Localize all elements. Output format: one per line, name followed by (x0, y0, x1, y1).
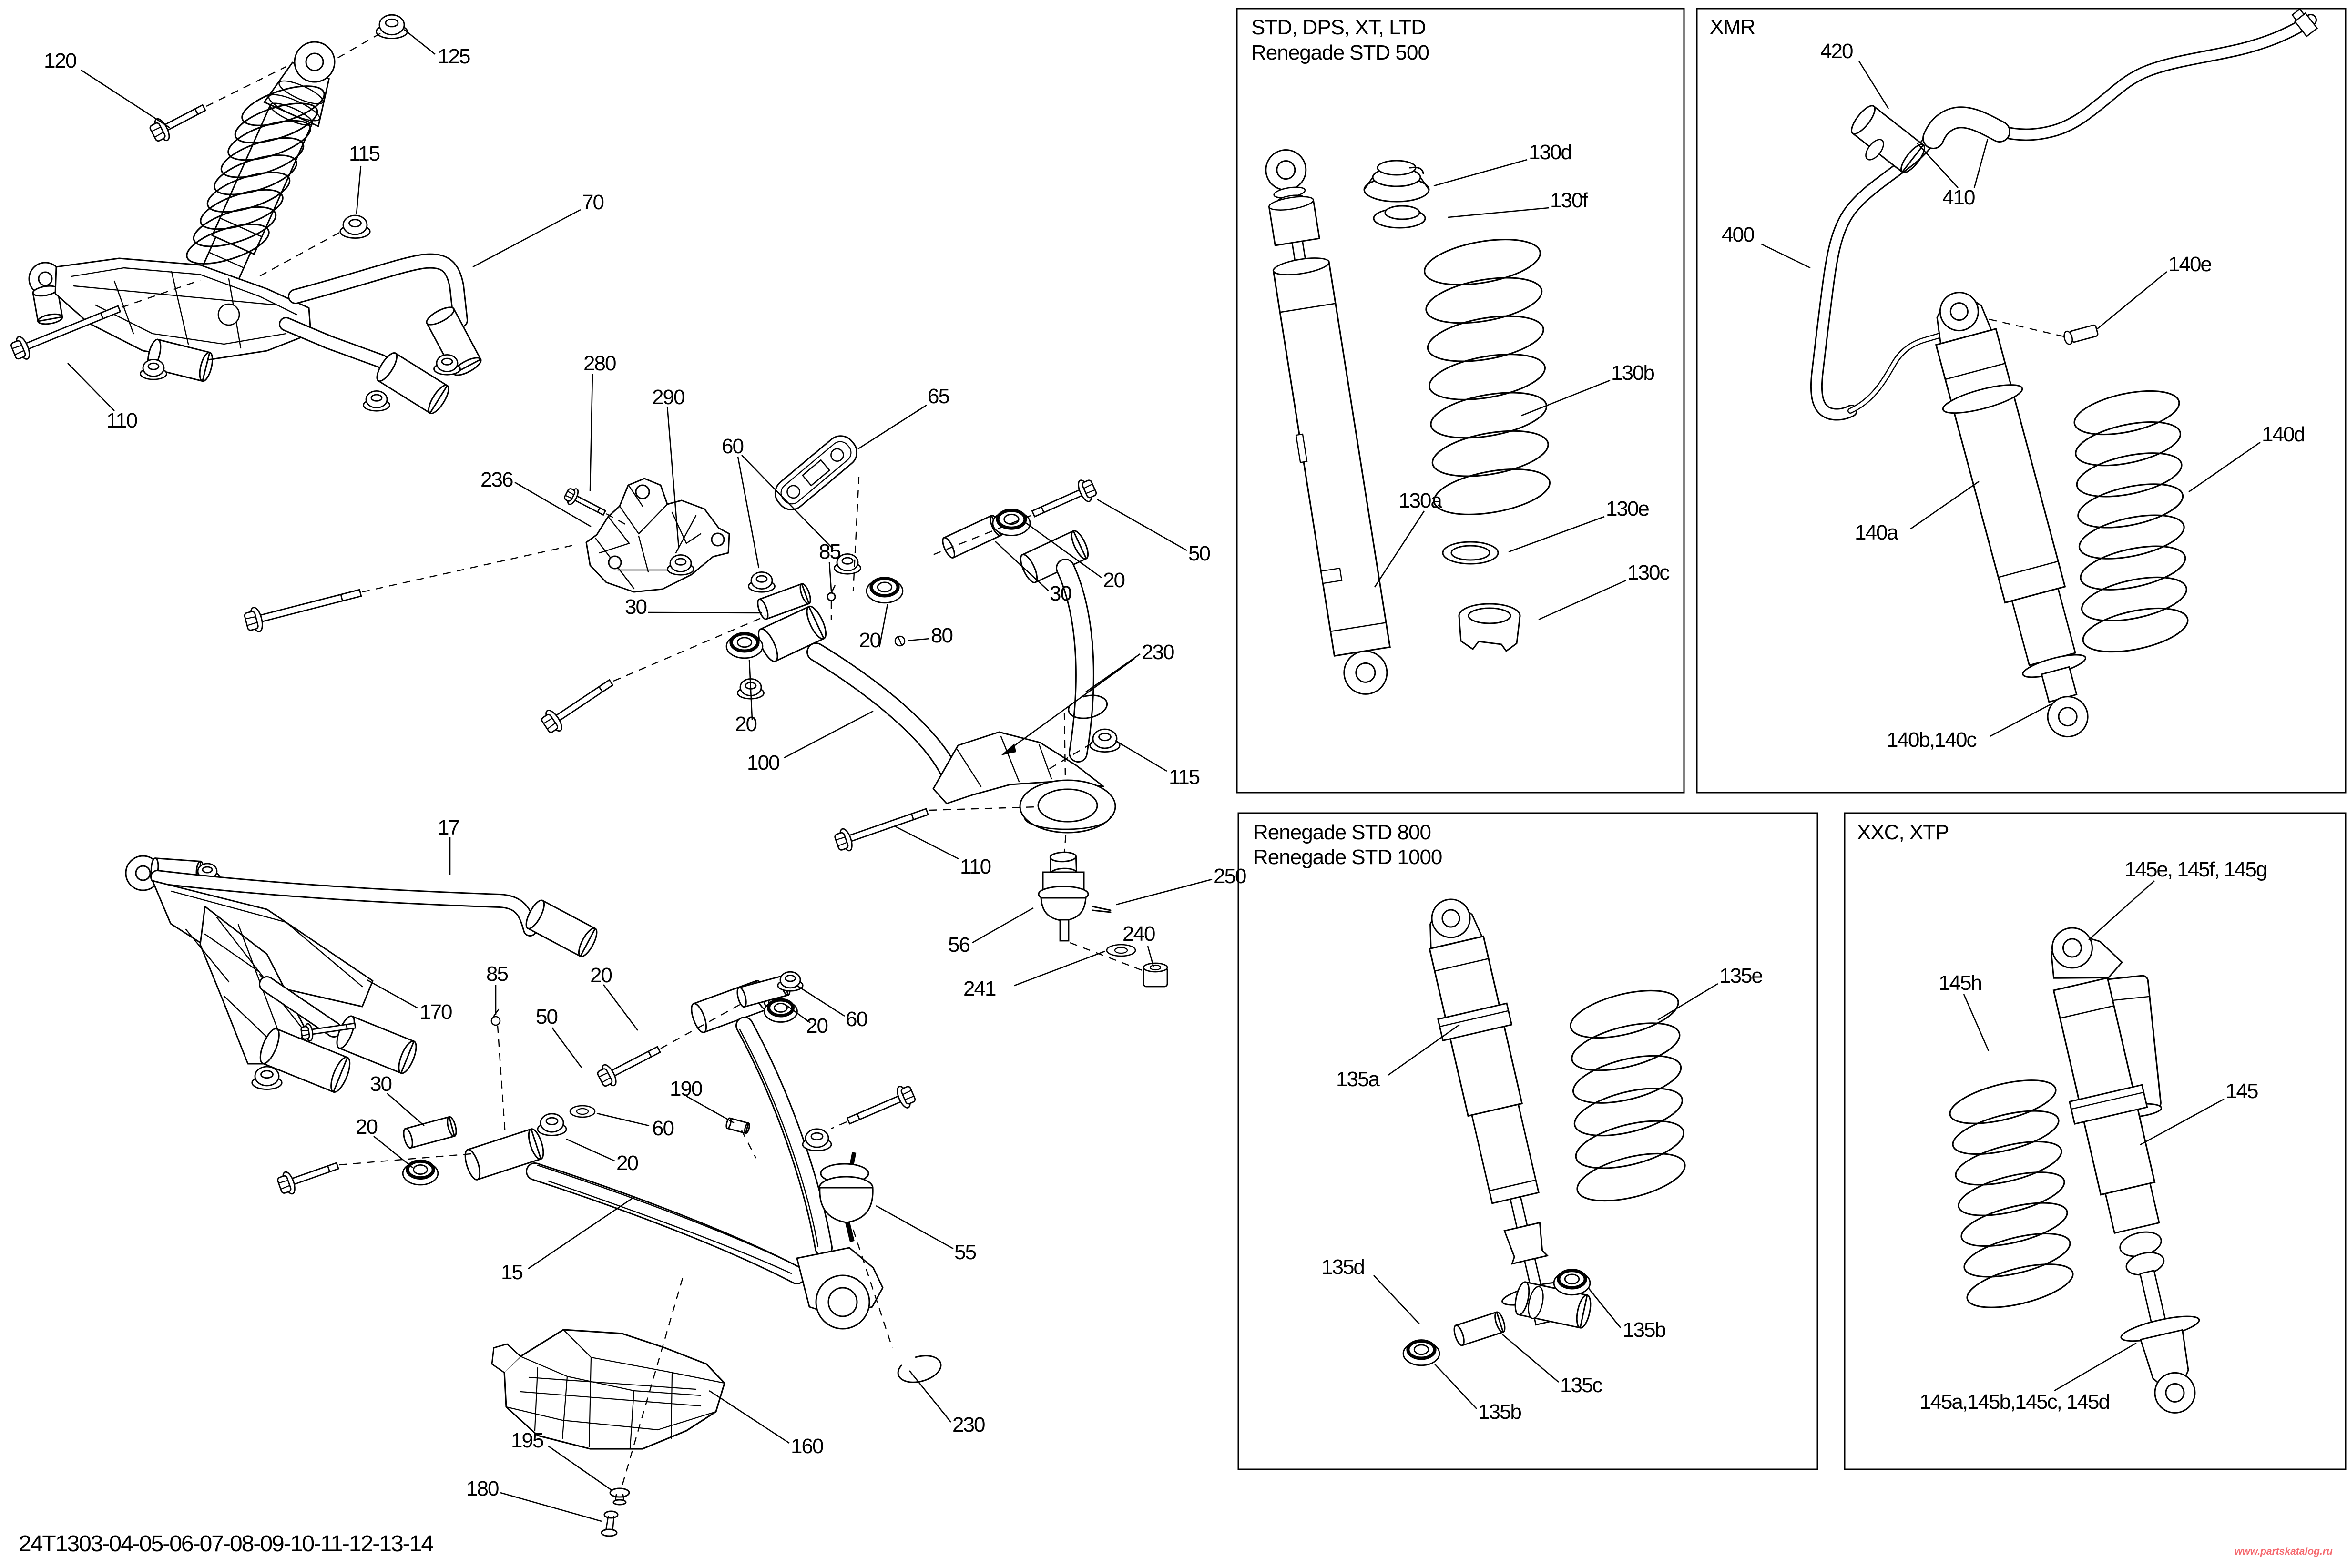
svg-text:30: 30 (625, 595, 646, 619)
svg-text:135d: 135d (1321, 1255, 1364, 1279)
svg-text:130b: 130b (1611, 361, 1654, 385)
svg-text:20: 20 (590, 964, 612, 987)
svg-text:130f: 130f (1550, 189, 1588, 212)
svg-text:20: 20 (735, 713, 756, 736)
svg-text:241: 241 (963, 977, 996, 1000)
svg-text:24T1303-04-05-06-07-08-09-10-1: 24T1303-04-05-06-07-08-09-10-11-12-13-14 (19, 1531, 433, 1557)
svg-text:145e, 145f, 145g: 145e, 145f, 145g (2124, 858, 2266, 881)
svg-text:250: 250 (1214, 865, 1246, 888)
svg-text:80: 80 (931, 624, 952, 647)
svg-text:60: 60 (652, 1117, 673, 1140)
svg-text:Renegade STD 800: Renegade STD 800 (1253, 821, 1431, 844)
svg-text:230: 230 (1142, 641, 1174, 664)
svg-text:20: 20 (859, 629, 880, 652)
svg-text:115: 115 (349, 142, 380, 165)
svg-text:110: 110 (960, 855, 991, 878)
svg-text:65: 65 (928, 385, 949, 408)
svg-text:130d: 130d (1529, 141, 1571, 164)
svg-text:130e: 130e (1606, 497, 1649, 520)
svg-text:400: 400 (1722, 223, 1754, 246)
svg-text:60: 60 (722, 435, 743, 458)
svg-text:160: 160 (791, 1435, 823, 1458)
svg-text:50: 50 (536, 1005, 557, 1028)
svg-text:85: 85 (819, 540, 840, 563)
svg-text:www.partskatalog.ru: www.partskatalog.ru (2235, 1546, 2333, 1557)
svg-text:145a,145b,145c, 145d: 145a,145b,145c, 145d (1919, 1390, 2109, 1414)
svg-text:20: 20 (616, 1151, 638, 1175)
svg-text:125: 125 (438, 45, 470, 68)
svg-text:XMR: XMR (1710, 15, 1755, 39)
svg-text:30: 30 (370, 1072, 391, 1096)
svg-text:140d: 140d (2262, 423, 2305, 446)
svg-text:85: 85 (486, 962, 508, 986)
svg-text:Renegade STD 500: Renegade STD 500 (1251, 41, 1429, 64)
svg-text:180: 180 (466, 1477, 499, 1500)
svg-text:50: 50 (1188, 542, 1210, 565)
svg-text:420: 420 (1820, 40, 1853, 63)
svg-text:410: 410 (1942, 186, 1975, 209)
svg-text:60: 60 (846, 1008, 867, 1031)
svg-text:70: 70 (582, 191, 603, 214)
svg-text:56: 56 (948, 933, 969, 957)
svg-text:110: 110 (106, 409, 137, 432)
svg-text:XXC, XTP: XXC, XTP (1857, 821, 1949, 844)
svg-text:115: 115 (1169, 765, 1200, 789)
svg-text:140b,140c: 140b,140c (1887, 728, 1977, 752)
svg-text:135b: 135b (1622, 1318, 1665, 1342)
svg-text:135e: 135e (1719, 964, 1762, 988)
svg-text:140e: 140e (2168, 253, 2211, 276)
svg-text:290: 290 (652, 386, 684, 409)
svg-text:135b: 135b (1478, 1400, 1521, 1424)
svg-text:30: 30 (1050, 582, 1071, 605)
svg-text:20: 20 (806, 1014, 827, 1038)
svg-text:140a: 140a (1855, 521, 1898, 544)
svg-text:130a: 130a (1398, 489, 1442, 512)
svg-text:145: 145 (2225, 1079, 2258, 1103)
svg-text:17: 17 (438, 816, 459, 839)
svg-text:135c: 135c (1560, 1374, 1602, 1397)
svg-text:15: 15 (501, 1261, 522, 1284)
svg-text:20: 20 (1103, 569, 1124, 592)
svg-text:145h: 145h (1939, 971, 1981, 995)
svg-text:135a: 135a (1336, 1068, 1380, 1091)
svg-text:170: 170 (419, 1000, 452, 1024)
svg-text:Renegade STD 1000: Renegade STD 1000 (1253, 845, 1442, 869)
svg-text:20: 20 (356, 1115, 377, 1139)
svg-text:120: 120 (44, 49, 76, 72)
svg-text:130c: 130c (1627, 561, 1669, 584)
svg-text:280: 280 (583, 352, 616, 375)
svg-text:55: 55 (954, 1241, 976, 1264)
svg-text:100: 100 (747, 751, 779, 774)
svg-text:240: 240 (1122, 922, 1155, 946)
svg-text:195: 195 (511, 1429, 543, 1452)
svg-text:236: 236 (480, 468, 513, 491)
svg-text:STD, DPS, XT, LTD: STD, DPS, XT, LTD (1251, 16, 1426, 39)
svg-text:190: 190 (670, 1077, 702, 1100)
svg-text:230: 230 (952, 1413, 985, 1436)
